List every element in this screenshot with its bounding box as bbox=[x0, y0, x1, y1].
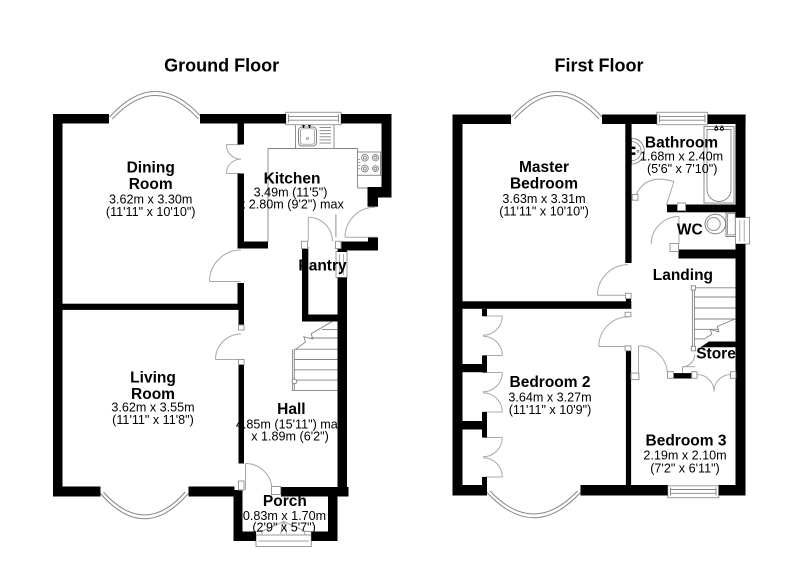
svg-text:(5'6" x 7'10"): (5'6" x 7'10") bbox=[647, 162, 717, 176]
svg-text:(11'11" x 10'9"): (11'11" x 10'9") bbox=[509, 403, 592, 417]
svg-text:(11'11" x 11'8"): (11'11" x 11'8") bbox=[112, 413, 194, 427]
svg-text:Bedroom 2: Bedroom 2 bbox=[510, 374, 591, 391]
svg-text:Bedroom 3: Bedroom 3 bbox=[646, 433, 727, 450]
svg-text:WC: WC bbox=[677, 222, 703, 239]
svg-text:2.19m x 2.10m: 2.19m x 2.10m bbox=[643, 449, 726, 463]
svg-text:Ground Floor: Ground Floor bbox=[164, 56, 279, 76]
svg-text:(7'2" x 6'11"): (7'2" x 6'11") bbox=[650, 462, 720, 476]
svg-text:(2'9" x 5'7"): (2'9" x 5'7") bbox=[252, 521, 315, 535]
svg-text:Room: Room bbox=[129, 176, 173, 193]
svg-text:Hall: Hall bbox=[277, 401, 305, 418]
svg-text:First Floor: First Floor bbox=[555, 56, 644, 76]
svg-text:Master: Master bbox=[519, 159, 569, 176]
svg-text:Landing: Landing bbox=[653, 267, 713, 284]
svg-text:Bedroom: Bedroom bbox=[510, 176, 578, 193]
svg-text:Store: Store bbox=[696, 346, 736, 363]
svg-text:(11'11" x 10'10"): (11'11" x 10'10") bbox=[106, 205, 196, 219]
svg-text:Living: Living bbox=[130, 370, 176, 387]
svg-text:(11'11" x 10'10"): (11'11" x 10'10") bbox=[499, 205, 589, 219]
svg-text:x 1.89m (6'2"): x 1.89m (6'2") bbox=[251, 430, 329, 444]
svg-text:Dining: Dining bbox=[127, 160, 175, 177]
svg-text:x 2.80m (9'2") max: x 2.80m (9'2") max bbox=[239, 198, 345, 212]
